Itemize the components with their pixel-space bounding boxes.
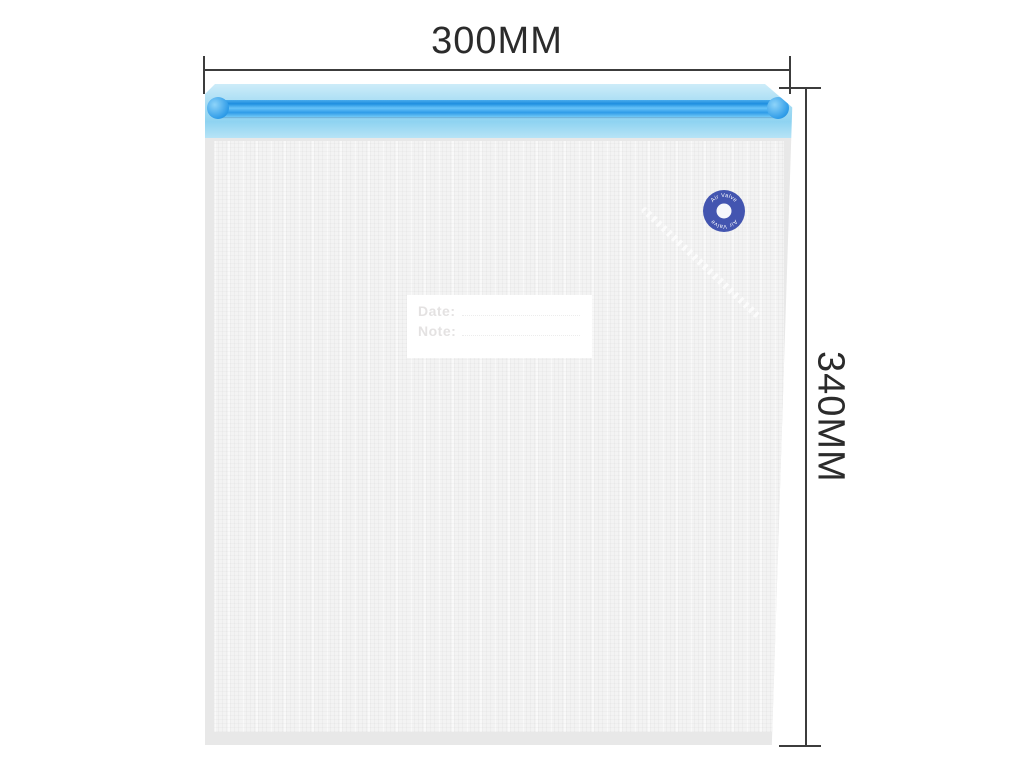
zipper-end-cap-right [767, 97, 789, 119]
date-row: Date: [418, 303, 582, 323]
product-dimension-diagram: 300MM 340MM Air Valve [0, 0, 1024, 768]
zipper-header [205, 84, 793, 138]
vacuum-bag: Air Valve Air Valve Date: Note: [205, 84, 793, 745]
note-row: Note: [418, 323, 582, 343]
height-dimension-label: 340MM [806, 87, 854, 747]
width-dimension-line [203, 69, 791, 71]
zipper-end-cap-left [207, 97, 229, 119]
air-valve-icon: Air Valve Air Valve [702, 189, 746, 233]
valve-hole [717, 204, 732, 219]
zipper-rail [211, 100, 787, 117]
date-dotted-line [462, 315, 580, 316]
bag-woven-surface [214, 141, 784, 732]
date-note-tag: Date: Note: [407, 295, 592, 358]
date-label: Date: [418, 303, 456, 319]
height-dimension-text: 340MM [809, 351, 852, 483]
note-dotted-line [462, 335, 580, 336]
note-label: Note: [418, 323, 456, 339]
width-dimension-label: 300MM [203, 20, 791, 63]
